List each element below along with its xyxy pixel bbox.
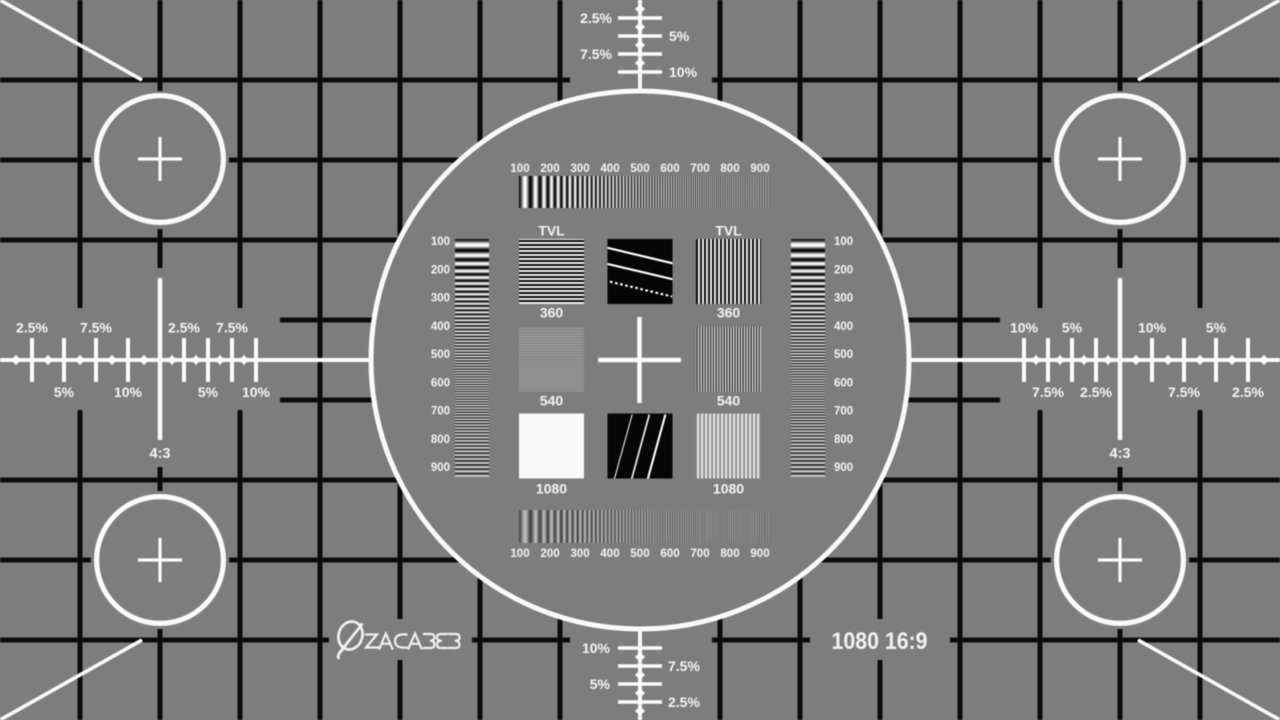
svg-text:600: 600 (660, 163, 679, 175)
svg-text:500: 500 (630, 163, 649, 175)
svg-text:5%: 5% (669, 28, 690, 44)
svg-text:TVL: TVL (715, 223, 742, 239)
svg-text:600: 600 (431, 377, 450, 389)
svg-text:2.5%: 2.5% (1080, 384, 1112, 400)
svg-text:800: 800 (720, 548, 739, 560)
svg-text:400: 400 (600, 163, 619, 175)
svg-text:300: 300 (570, 548, 589, 560)
svg-text:1080: 1080 (713, 481, 744, 497)
svg-text:600: 600 (834, 377, 853, 389)
svg-text:200: 200 (540, 548, 559, 560)
svg-text:900: 900 (750, 548, 769, 560)
svg-text:540: 540 (717, 393, 741, 409)
svg-text:600: 600 (660, 548, 679, 560)
svg-text:200: 200 (431, 264, 450, 276)
svg-text:100: 100 (510, 548, 529, 560)
svg-text:540: 540 (540, 393, 564, 409)
svg-text:200: 200 (540, 163, 559, 175)
svg-text:900: 900 (834, 462, 853, 474)
svg-text:900: 900 (750, 163, 769, 175)
svg-text:10%: 10% (242, 384, 271, 400)
svg-text:500: 500 (834, 349, 853, 361)
svg-text:10%: 10% (1138, 320, 1167, 336)
svg-text:5%: 5% (1062, 320, 1083, 336)
svg-text:5%: 5% (198, 384, 219, 400)
svg-text:400: 400 (834, 321, 853, 333)
svg-text:700: 700 (690, 548, 709, 560)
svg-text:300: 300 (834, 293, 853, 305)
svg-text:10%: 10% (669, 64, 698, 80)
svg-text:700: 700 (834, 406, 853, 418)
svg-text:10%: 10% (114, 384, 143, 400)
svg-text:10%: 10% (1010, 320, 1039, 336)
svg-text:5%: 5% (54, 384, 75, 400)
svg-text:1080 16:9: 1080 16:9 (832, 627, 928, 655)
svg-text:100: 100 (431, 236, 450, 248)
svg-text:200: 200 (834, 264, 853, 276)
svg-text:7.5%: 7.5% (668, 658, 700, 674)
svg-text:5%: 5% (1206, 320, 1227, 336)
svg-text:100: 100 (834, 236, 853, 248)
svg-text:2.5%: 2.5% (168, 320, 200, 336)
svg-text:2.5%: 2.5% (1232, 384, 1264, 400)
svg-text:1080: 1080 (536, 481, 567, 497)
svg-text:300: 300 (570, 163, 589, 175)
svg-text:500: 500 (630, 548, 649, 560)
svg-text:700: 700 (690, 163, 709, 175)
svg-text:TVL: TVL (538, 223, 565, 239)
svg-text:10%: 10% (582, 640, 611, 656)
svg-text:4:3: 4:3 (150, 446, 171, 462)
svg-text:7.5%: 7.5% (1032, 384, 1064, 400)
svg-text:900: 900 (431, 462, 450, 474)
svg-text:100: 100 (510, 163, 529, 175)
svg-text:7.5%: 7.5% (1168, 384, 1200, 400)
svg-text:2.5%: 2.5% (16, 320, 48, 336)
svg-text:500: 500 (431, 349, 450, 361)
svg-text:800: 800 (834, 434, 853, 446)
svg-text:400: 400 (431, 321, 450, 333)
svg-text:800: 800 (720, 163, 739, 175)
svg-text:7.5%: 7.5% (80, 320, 112, 336)
svg-text:800: 800 (431, 434, 450, 446)
svg-text:2.5%: 2.5% (580, 10, 612, 26)
svg-text:4:3: 4:3 (1110, 446, 1131, 462)
svg-text:7.5%: 7.5% (216, 320, 248, 336)
svg-text:400: 400 (600, 548, 619, 560)
svg-text:360: 360 (540, 305, 564, 321)
svg-text:2.5%: 2.5% (668, 694, 700, 710)
svg-text:5%: 5% (590, 676, 611, 692)
svg-text:7.5%: 7.5% (580, 46, 612, 62)
svg-text:360: 360 (717, 305, 741, 321)
svg-text:700: 700 (431, 406, 450, 418)
svg-text:300: 300 (431, 293, 450, 305)
